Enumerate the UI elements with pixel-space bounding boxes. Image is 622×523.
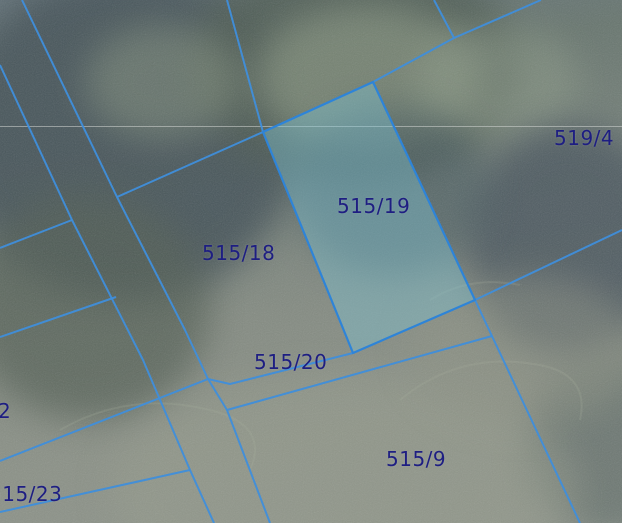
parcel-label: 2 (0, 401, 11, 422)
parcel-label: 515/23 (0, 484, 62, 505)
parcel-labels: 515/19515/18515/20515/9519/4515/232 (0, 0, 622, 523)
parcel-label: 519/4 (554, 128, 614, 149)
parcel-label: 515/20 (254, 352, 327, 373)
parcel-label: 515/9 (386, 449, 446, 470)
map-viewport[interactable]: 515/19515/18515/20515/9519/4515/232 (0, 0, 622, 523)
parcel-label: 515/18 (202, 243, 275, 264)
parcel-label: 515/19 (337, 196, 410, 217)
